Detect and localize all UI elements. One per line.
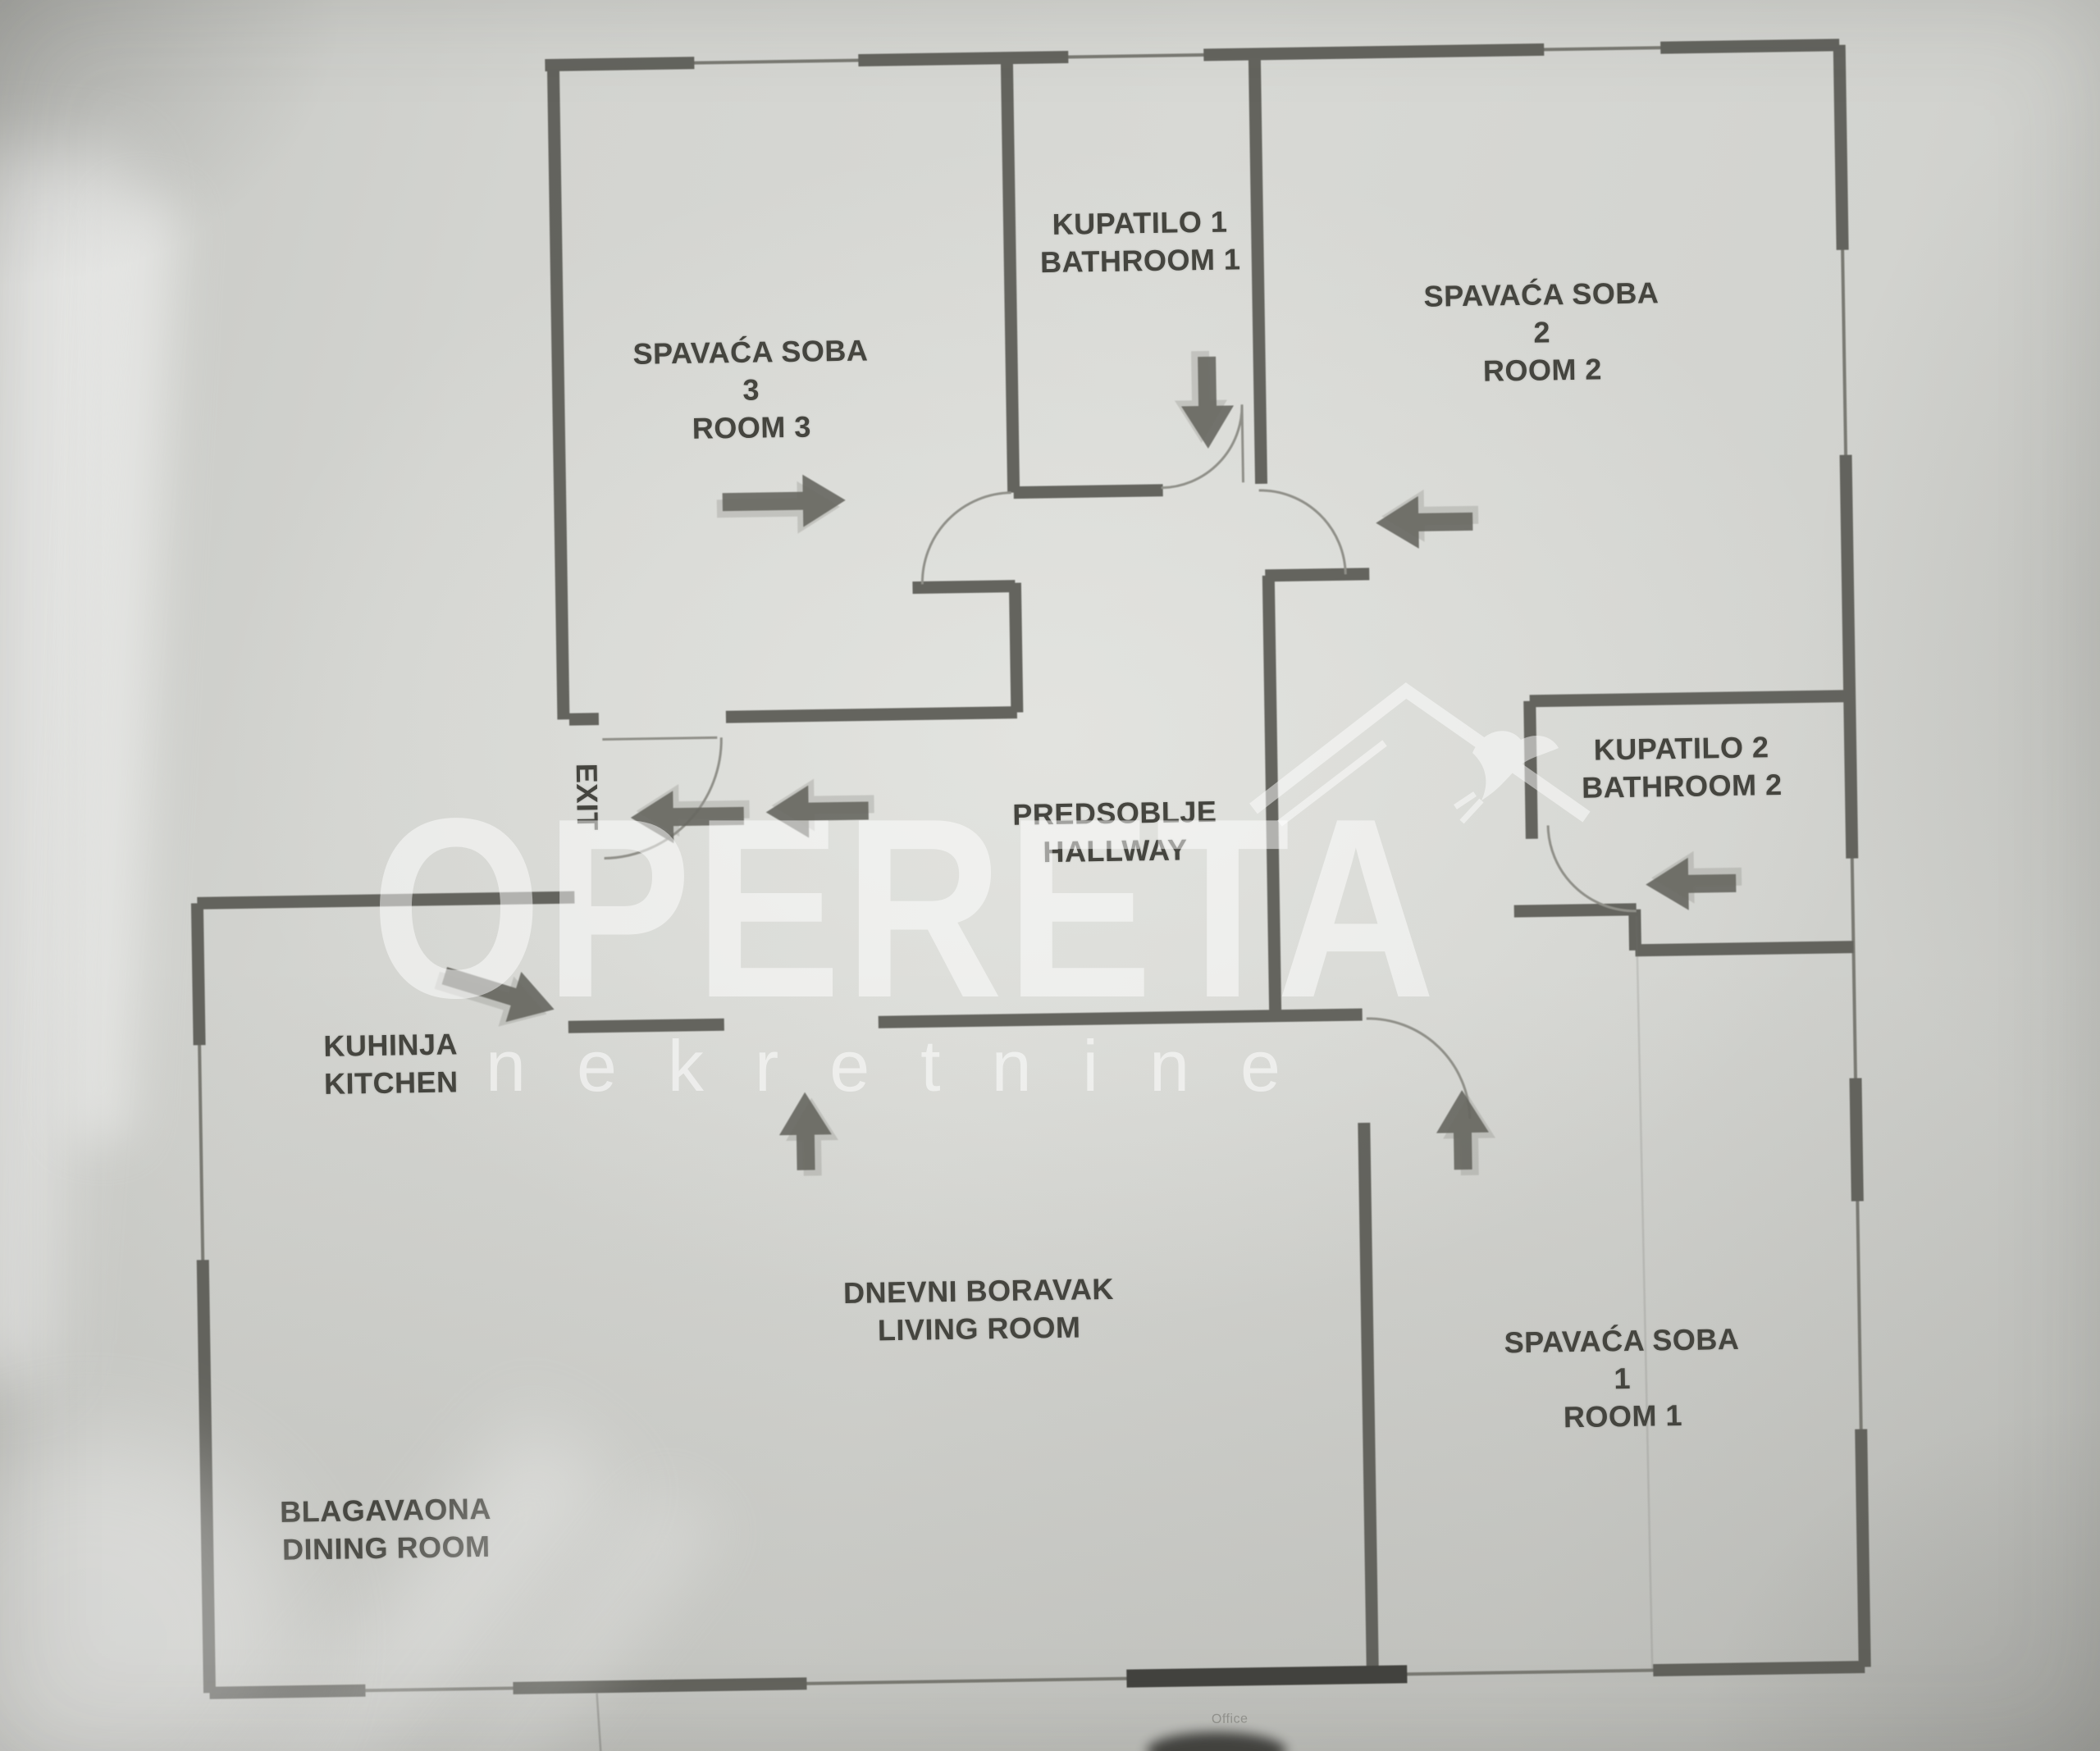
direction-arrow-icon (1436, 1090, 1496, 1176)
room-label-room-3: SPAVAĆA SOBA 3 ROOM 3 (632, 331, 870, 448)
direction-arrow-icon (765, 777, 874, 838)
floor-plan: SPAVAĆA SOBA 3 ROOM 3KUPATILO 1 BATHROOM… (0, 0, 2100, 1751)
floor-plan-photo: SPAVAĆA SOBA 3 ROOM 3KUPATILO 1 BATHROOM… (0, 0, 2100, 1751)
room-label-dining-room: BLAGAVAONA DINING ROOM (280, 1490, 492, 1569)
room-label-room-1: SPAVAĆA SOBA 1 ROOM 1 (1504, 1320, 1741, 1437)
room-label-room-2: SPAVAĆA SOBA 2 ROOM 2 (1423, 274, 1660, 390)
direction-arrow-icon (1376, 489, 1479, 549)
direction-arrow-icon (778, 1092, 839, 1176)
room-label-living-room: DNEVNI BORAVAK LIVING ROOM (843, 1270, 1115, 1350)
room-label-bathroom-1: KUPATILO 1 BATHROOM 1 (1039, 203, 1241, 281)
direction-arrow-icon (1174, 350, 1235, 449)
direction-arrow-icon (1646, 850, 1742, 911)
room-label-bathroom-2: KUPATILO 2 BATHROOM 2 (1581, 728, 1783, 807)
office-footnote: Office (1212, 1712, 1249, 1727)
direction-arrow-icon (716, 474, 846, 535)
exit-label: EXIT (568, 763, 606, 831)
room-label-kitchen: KUHINJA KITCHEN (323, 1025, 459, 1103)
direction-arrow-icon (630, 783, 750, 844)
room-label-hallway: PREDSOBLJE HALLWAY (1012, 793, 1217, 872)
